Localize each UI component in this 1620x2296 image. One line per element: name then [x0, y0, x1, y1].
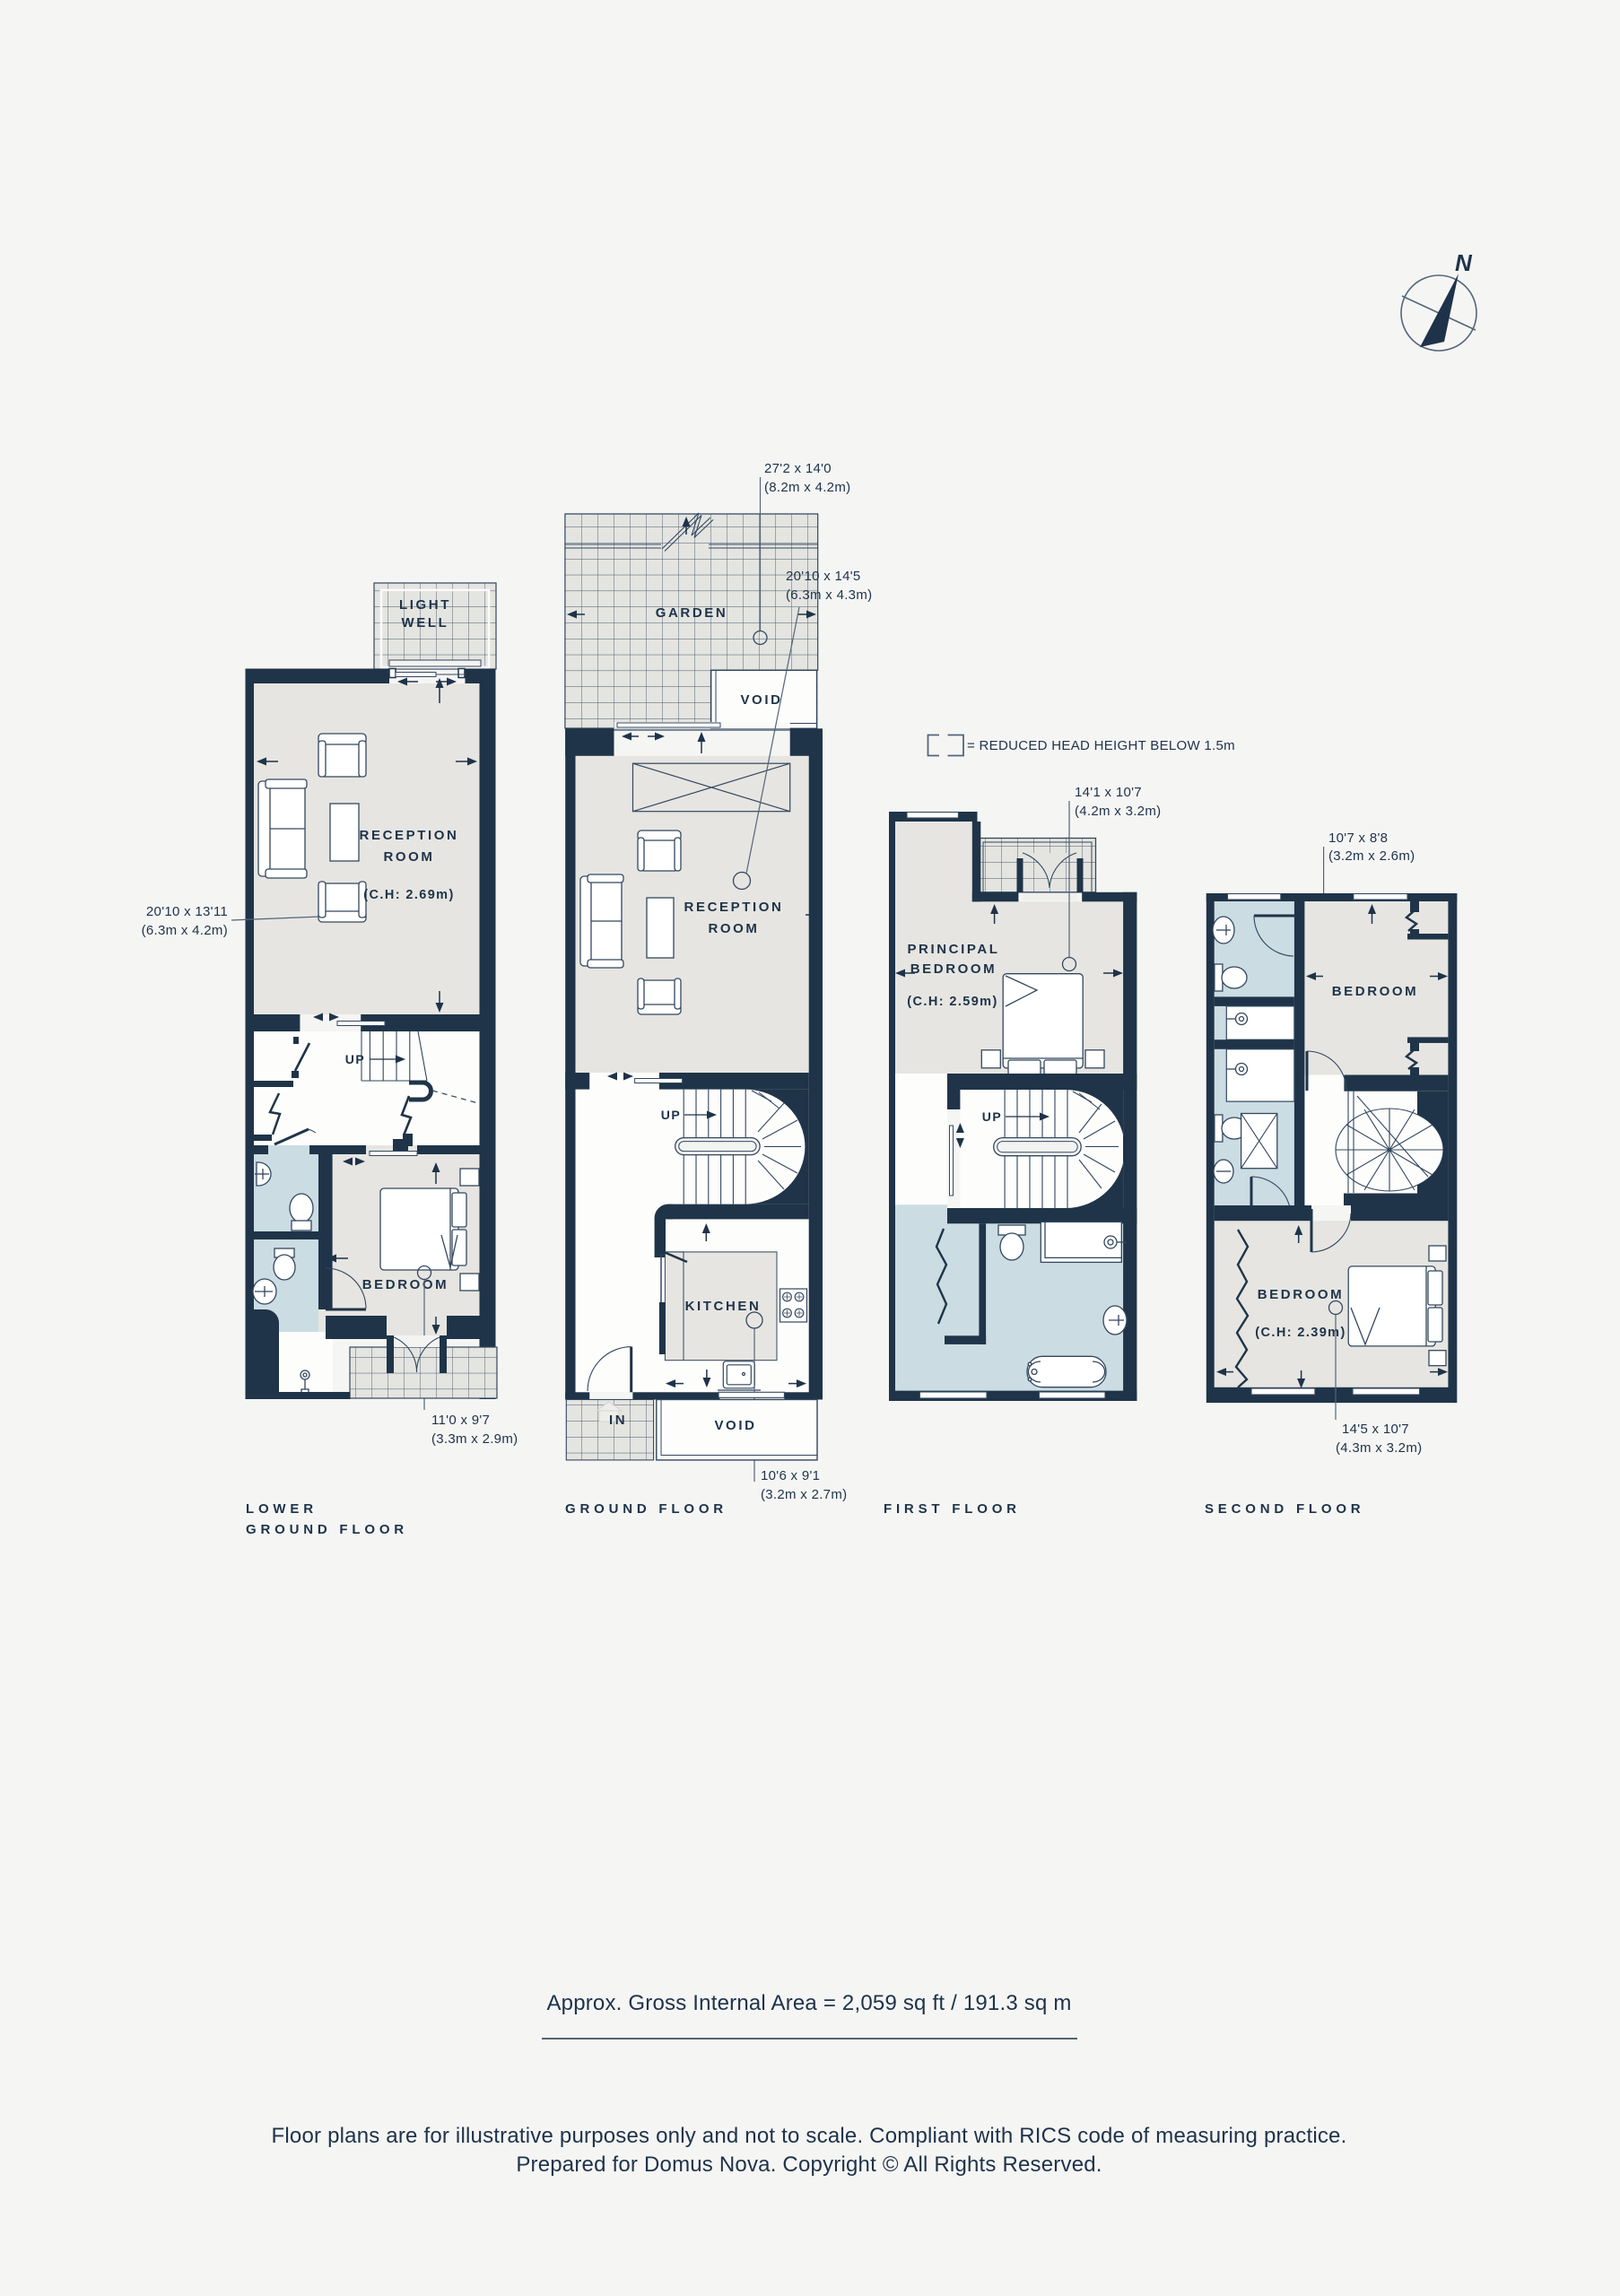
svg-text:(4.2m x 3.2m): (4.2m x 3.2m)	[1075, 804, 1161, 819]
svg-text:Approx. Gross Internal Area =: Approx. Gross Internal Area = 2,059 sq f…	[546, 1991, 1071, 2015]
svg-text:WELL: WELL	[402, 615, 449, 631]
svg-text:GROUND FLOOR: GROUND FLOOR	[246, 1522, 408, 1537]
svg-text:27'2 x 14'0: 27'2 x 14'0	[764, 461, 832, 476]
svg-text:LIGHT: LIGHT	[399, 597, 451, 613]
svg-text:14'1 x 10'7: 14'1 x 10'7	[1075, 785, 1142, 800]
svg-text:ROOM: ROOM	[708, 921, 759, 936]
svg-text:BEDROOM: BEDROOM	[910, 961, 997, 977]
svg-text:Prepared for Domus Nova. Copyr: Prepared for Domus Nova. Copyright © All…	[516, 2152, 1102, 2177]
svg-text:SECOND FLOOR: SECOND FLOOR	[1205, 1501, 1364, 1517]
svg-text:(3.2m x 2.7m): (3.2m x 2.7m)	[761, 1487, 847, 1502]
svg-text:ROOM: ROOM	[383, 849, 434, 865]
svg-text:GROUND FLOOR: GROUND FLOOR	[565, 1501, 727, 1517]
svg-text:20'10 x 14'5: 20'10 x 14'5	[786, 569, 861, 584]
svg-text:N: N	[1455, 249, 1473, 276]
svg-text:(8.2m x 4.2m): (8.2m x 4.2m)	[764, 480, 850, 495]
svg-text:10'6 x 9'1: 10'6 x 9'1	[761, 1468, 820, 1483]
svg-text:PRINCIPAL: PRINCIPAL	[907, 942, 999, 957]
svg-text:UP: UP	[345, 1052, 365, 1066]
svg-text:VOID: VOID	[714, 1418, 756, 1433]
svg-text:20'10 x 13'11: 20'10 x 13'11	[146, 904, 228, 919]
svg-text:RECEPTION: RECEPTION	[684, 900, 784, 915]
svg-text:(6.3m x 4.2m): (6.3m x 4.2m)	[142, 923, 228, 938]
svg-text:FIRST FLOOR: FIRST FLOOR	[884, 1501, 1021, 1517]
svg-text:LOWER: LOWER	[246, 1501, 318, 1517]
svg-text:BEDROOM: BEDROOM	[1258, 1287, 1345, 1302]
svg-text:(3.3m x 2.9m): (3.3m x 2.9m)	[431, 1431, 518, 1447]
svg-text:(4.3m x 3.2m): (4.3m x 3.2m)	[1336, 1440, 1422, 1456]
svg-text:GARDEN: GARDEN	[656, 605, 728, 621]
svg-text:(C.H: 2.39m): (C.H: 2.39m)	[1255, 1326, 1346, 1340]
svg-text:UP: UP	[661, 1108, 681, 1122]
svg-text:IN: IN	[609, 1413, 627, 1428]
svg-text:BEDROOM: BEDROOM	[362, 1277, 449, 1292]
svg-text:BEDROOM: BEDROOM	[1332, 984, 1419, 999]
svg-text:RECEPTION: RECEPTION	[360, 828, 459, 843]
svg-text:UP: UP	[982, 1109, 1002, 1124]
svg-text:(C.H: 2.59m): (C.H: 2.59m)	[907, 995, 997, 1009]
svg-text:(C.H: 2.69m): (C.H: 2.69m)	[363, 888, 454, 902]
svg-text:11'0 x 9'7: 11'0 x 9'7	[431, 1413, 490, 1428]
svg-text:(6.3m x 4.3m): (6.3m x 4.3m)	[786, 587, 872, 603]
svg-text:KITCHEN: KITCHEN	[685, 1299, 762, 1314]
svg-text:10'7 x 8'8: 10'7 x 8'8	[1328, 831, 1388, 846]
svg-text:= REDUCED HEAD HEIGHT BELOW 1.: = REDUCED HEAD HEIGHT BELOW 1.5m	[967, 738, 1235, 753]
svg-text:Floor plans are for illustrati: Floor plans are for illustrative purpose…	[272, 2124, 1347, 2148]
svg-text:(3.2m x 2.6m): (3.2m x 2.6m)	[1328, 848, 1415, 864]
svg-text:14'5 x 10'7: 14'5 x 10'7	[1342, 1422, 1409, 1437]
svg-text:VOID: VOID	[740, 692, 782, 708]
